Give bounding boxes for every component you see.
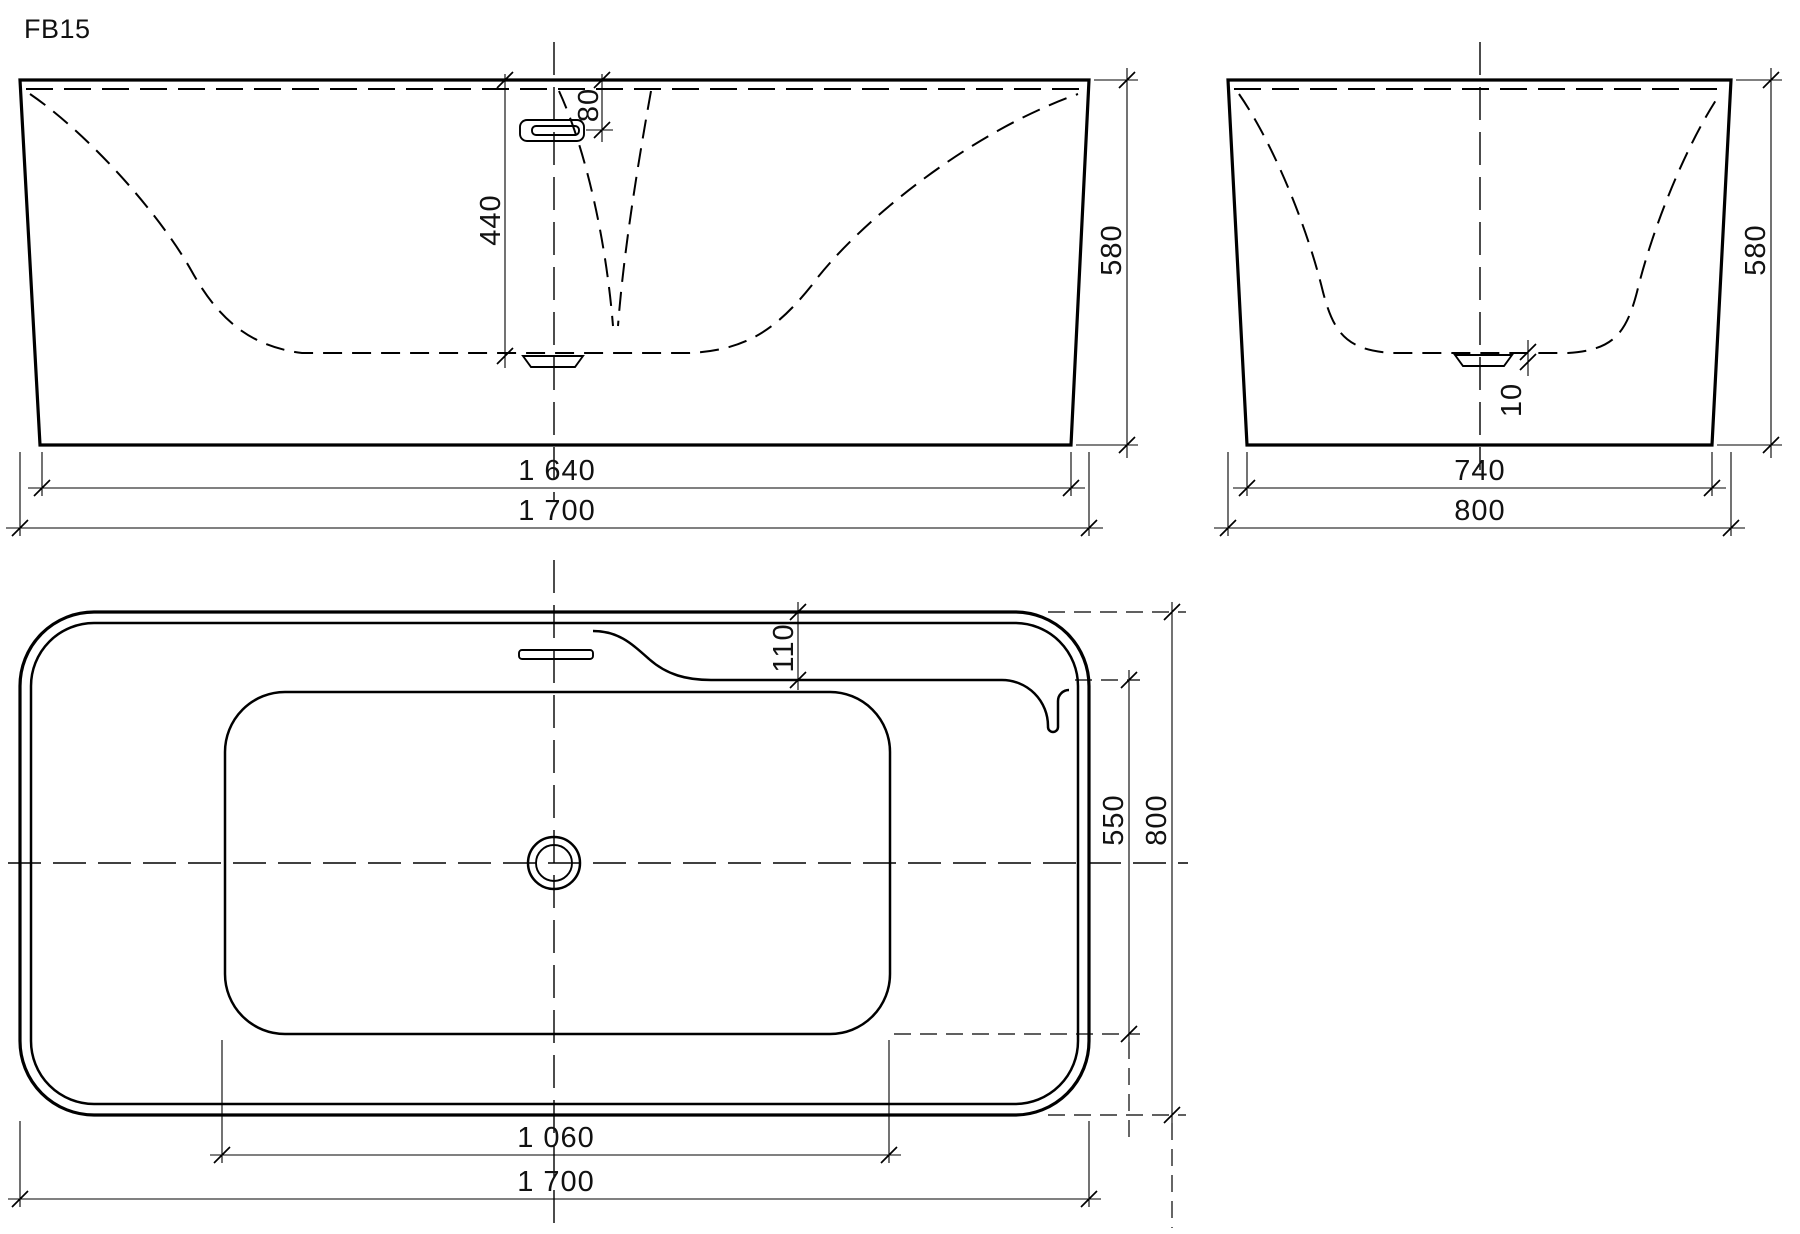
front-drain-fitting — [523, 356, 583, 367]
front-dim-1700-label: 1 700 — [518, 495, 596, 527]
end-dim-580: 580 — [1717, 68, 1782, 458]
end-drain-fitting — [1455, 355, 1512, 366]
front-dim-440-label: 440 — [475, 194, 507, 245]
plan-dim-550-label: 550 — [1098, 794, 1130, 845]
drawing-sheet: FB15 440 80 — [0, 0, 1800, 1234]
plan-view: 110 550 800 1 060 1 700 — [8, 560, 1188, 1232]
front-overflow-slot — [532, 126, 579, 135]
end-dim-10: 10 — [1496, 340, 1536, 417]
end-elevation-view: 10 580 740 800 — [1214, 42, 1782, 536]
end-dim-800-label: 800 — [1454, 495, 1505, 527]
front-dim-1640: 1 640 — [28, 452, 1085, 496]
plan-dim-1700-label: 1 700 — [517, 1166, 595, 1198]
plan-deck-edge — [593, 631, 1069, 732]
end-dim-740-label: 740 — [1454, 455, 1505, 487]
end-dim-580-label: 580 — [1740, 224, 1772, 275]
end-dim-10-label: 10 — [1496, 383, 1528, 417]
front-overflow-funnel-hidden-right — [618, 91, 651, 326]
plan-dim-800-label: 800 — [1141, 794, 1173, 845]
plan-dim-1060: 1 060 — [210, 1040, 901, 1163]
technical-drawing: FB15 440 80 — [0, 0, 1800, 1234]
drawing-title: FB15 — [24, 14, 91, 44]
front-dim-440: 440 — [475, 72, 513, 368]
front-dim-1640-label: 1 640 — [518, 455, 596, 487]
front-dim-80-label: 80 — [573, 88, 605, 122]
front-dim-580-label: 580 — [1096, 224, 1128, 275]
front-elevation-view: 440 80 580 1 640 1 700 — [6, 42, 1138, 536]
plan-dim-110: 110 — [768, 602, 806, 690]
end-dim-740: 740 — [1233, 452, 1726, 496]
plan-dim-550: 550 — [1098, 670, 1137, 1042]
plan-dim-110-label: 110 — [768, 623, 800, 672]
plan-dim-1060-label: 1 060 — [517, 1122, 595, 1154]
plan-overflow-slot — [519, 650, 593, 659]
